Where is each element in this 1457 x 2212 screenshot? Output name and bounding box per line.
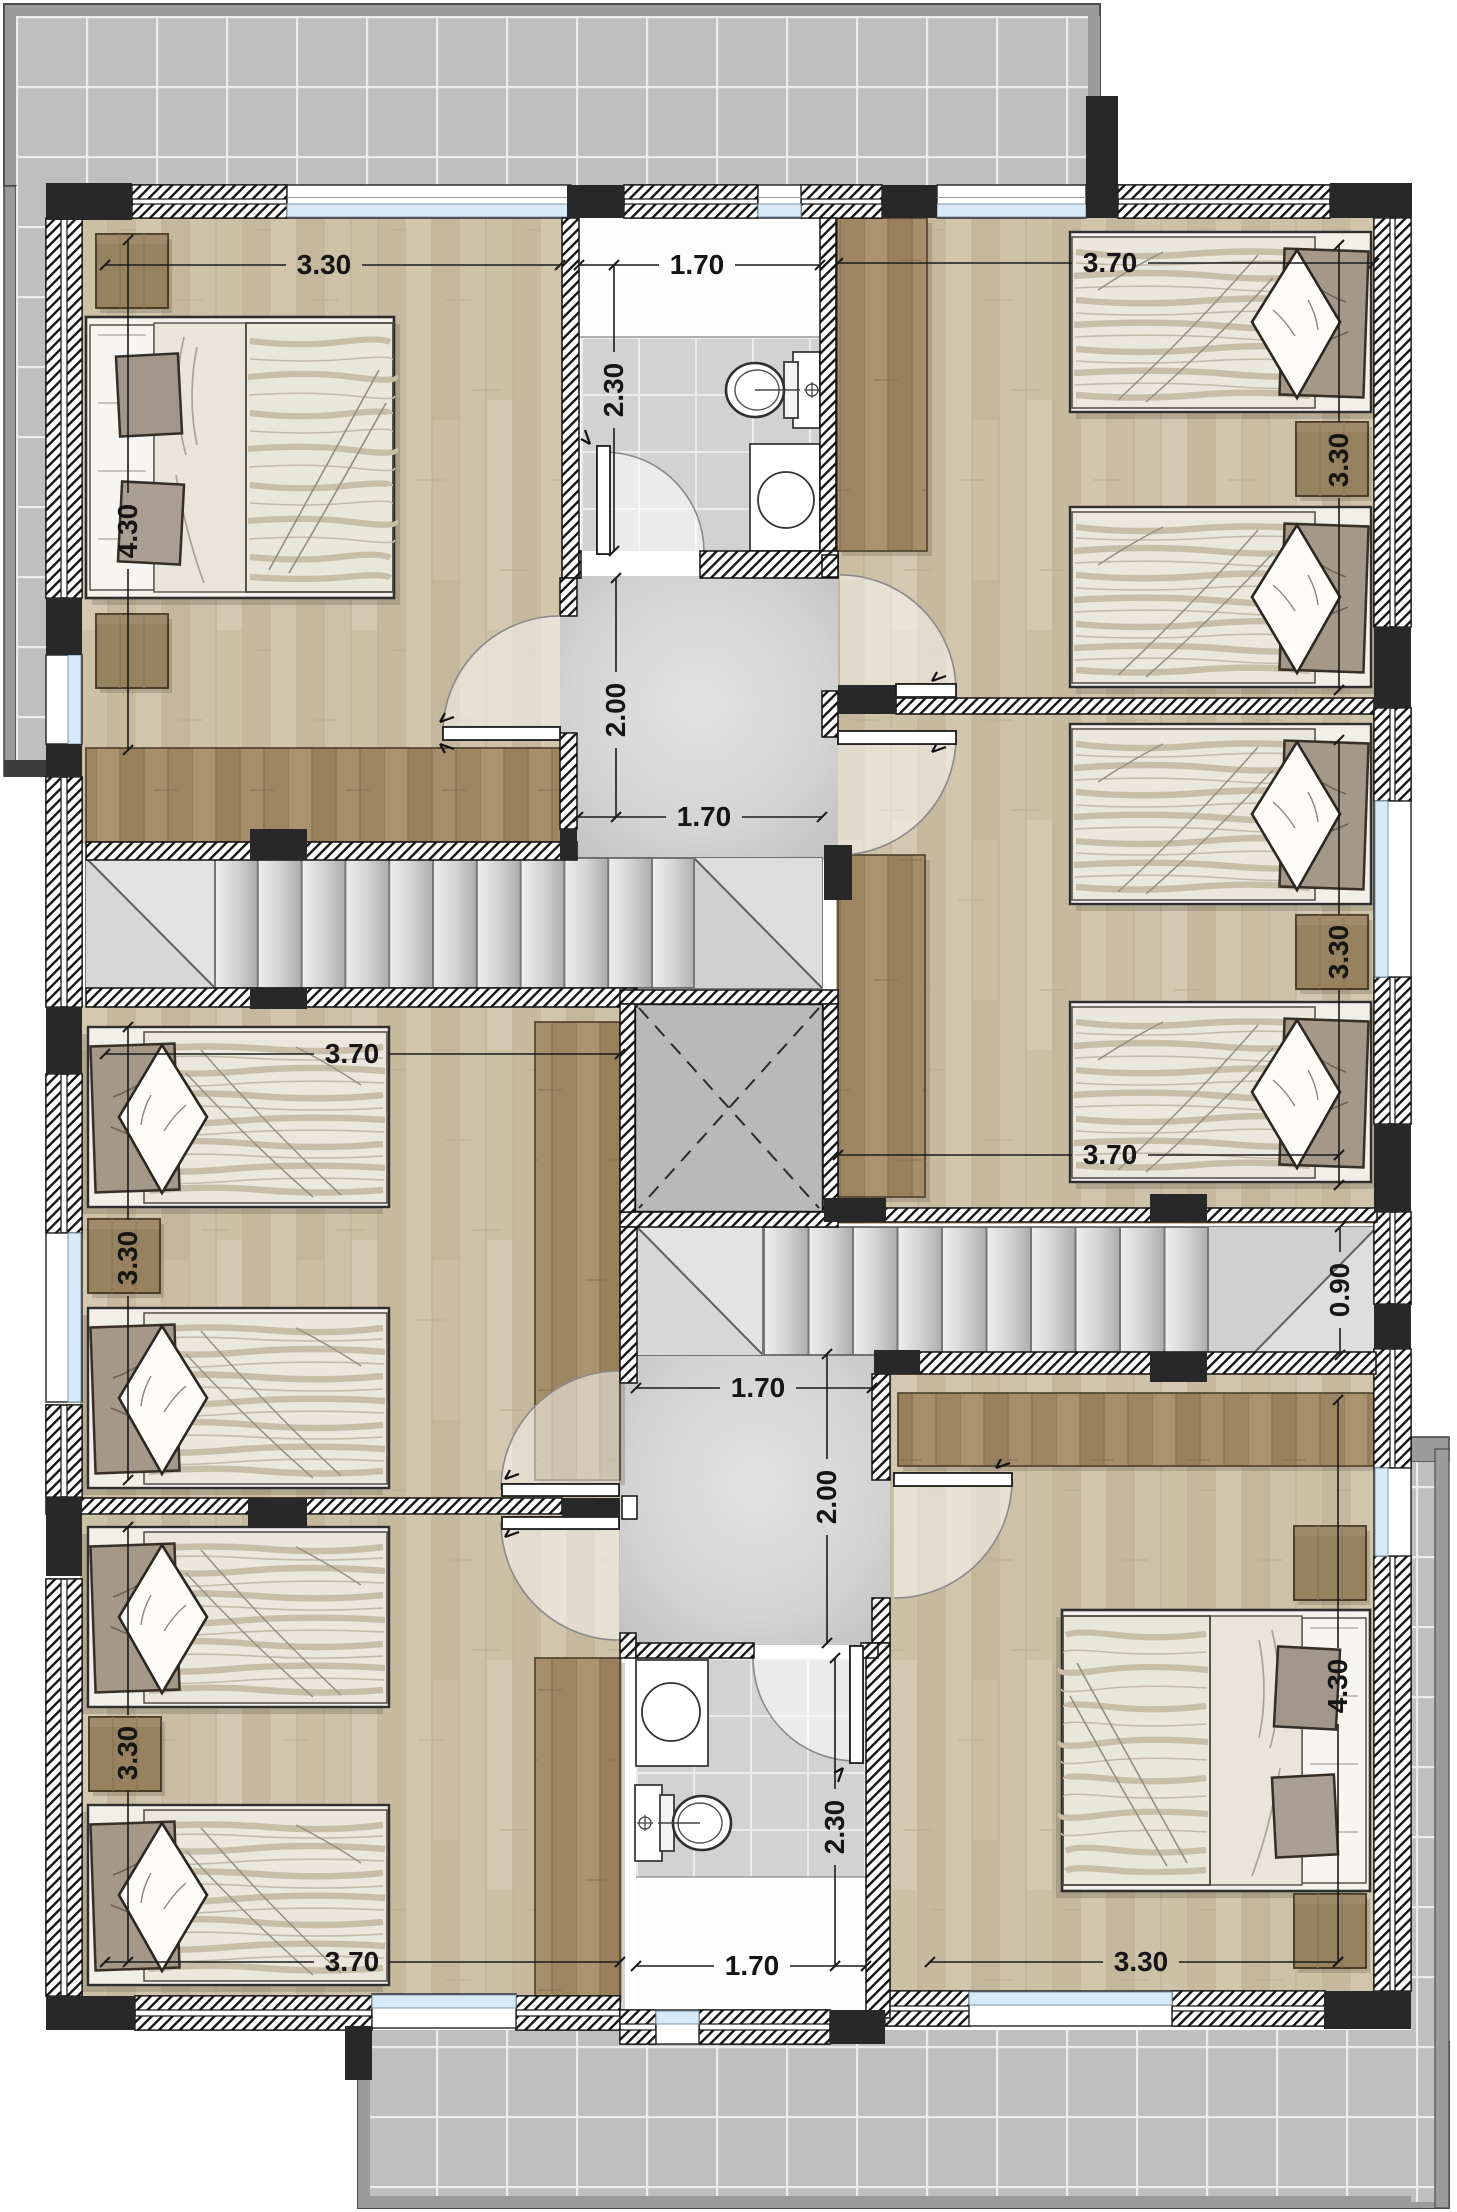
- svg-text:1.70: 1.70: [725, 1950, 780, 1981]
- svg-text:2.30: 2.30: [819, 1800, 850, 1855]
- svg-text:1.70: 1.70: [677, 801, 732, 832]
- svg-text:0.90: 0.90: [1324, 1263, 1355, 1318]
- svg-text:3.30: 3.30: [1114, 1946, 1169, 1977]
- svg-text:3.70: 3.70: [325, 1946, 380, 1977]
- svg-text:3.70: 3.70: [1083, 1139, 1138, 1170]
- svg-text:2.00: 2.00: [811, 1470, 842, 1525]
- svg-text:3.30: 3.30: [1323, 925, 1354, 980]
- svg-text:1.70: 1.70: [731, 1372, 786, 1403]
- svg-text:3.30: 3.30: [297, 249, 352, 280]
- svg-text:3.70: 3.70: [325, 1038, 380, 1069]
- svg-text:4.30: 4.30: [112, 504, 143, 559]
- svg-text:3.30: 3.30: [112, 1726, 143, 1781]
- svg-text:3.30: 3.30: [1323, 433, 1354, 488]
- svg-text:1.70: 1.70: [670, 249, 725, 280]
- svg-text:3.70: 3.70: [1083, 247, 1138, 278]
- svg-text:3.30: 3.30: [112, 1231, 143, 1286]
- svg-text:2.00: 2.00: [600, 683, 631, 738]
- svg-text:4.30: 4.30: [1322, 1659, 1353, 1714]
- svg-text:2.30: 2.30: [598, 363, 629, 418]
